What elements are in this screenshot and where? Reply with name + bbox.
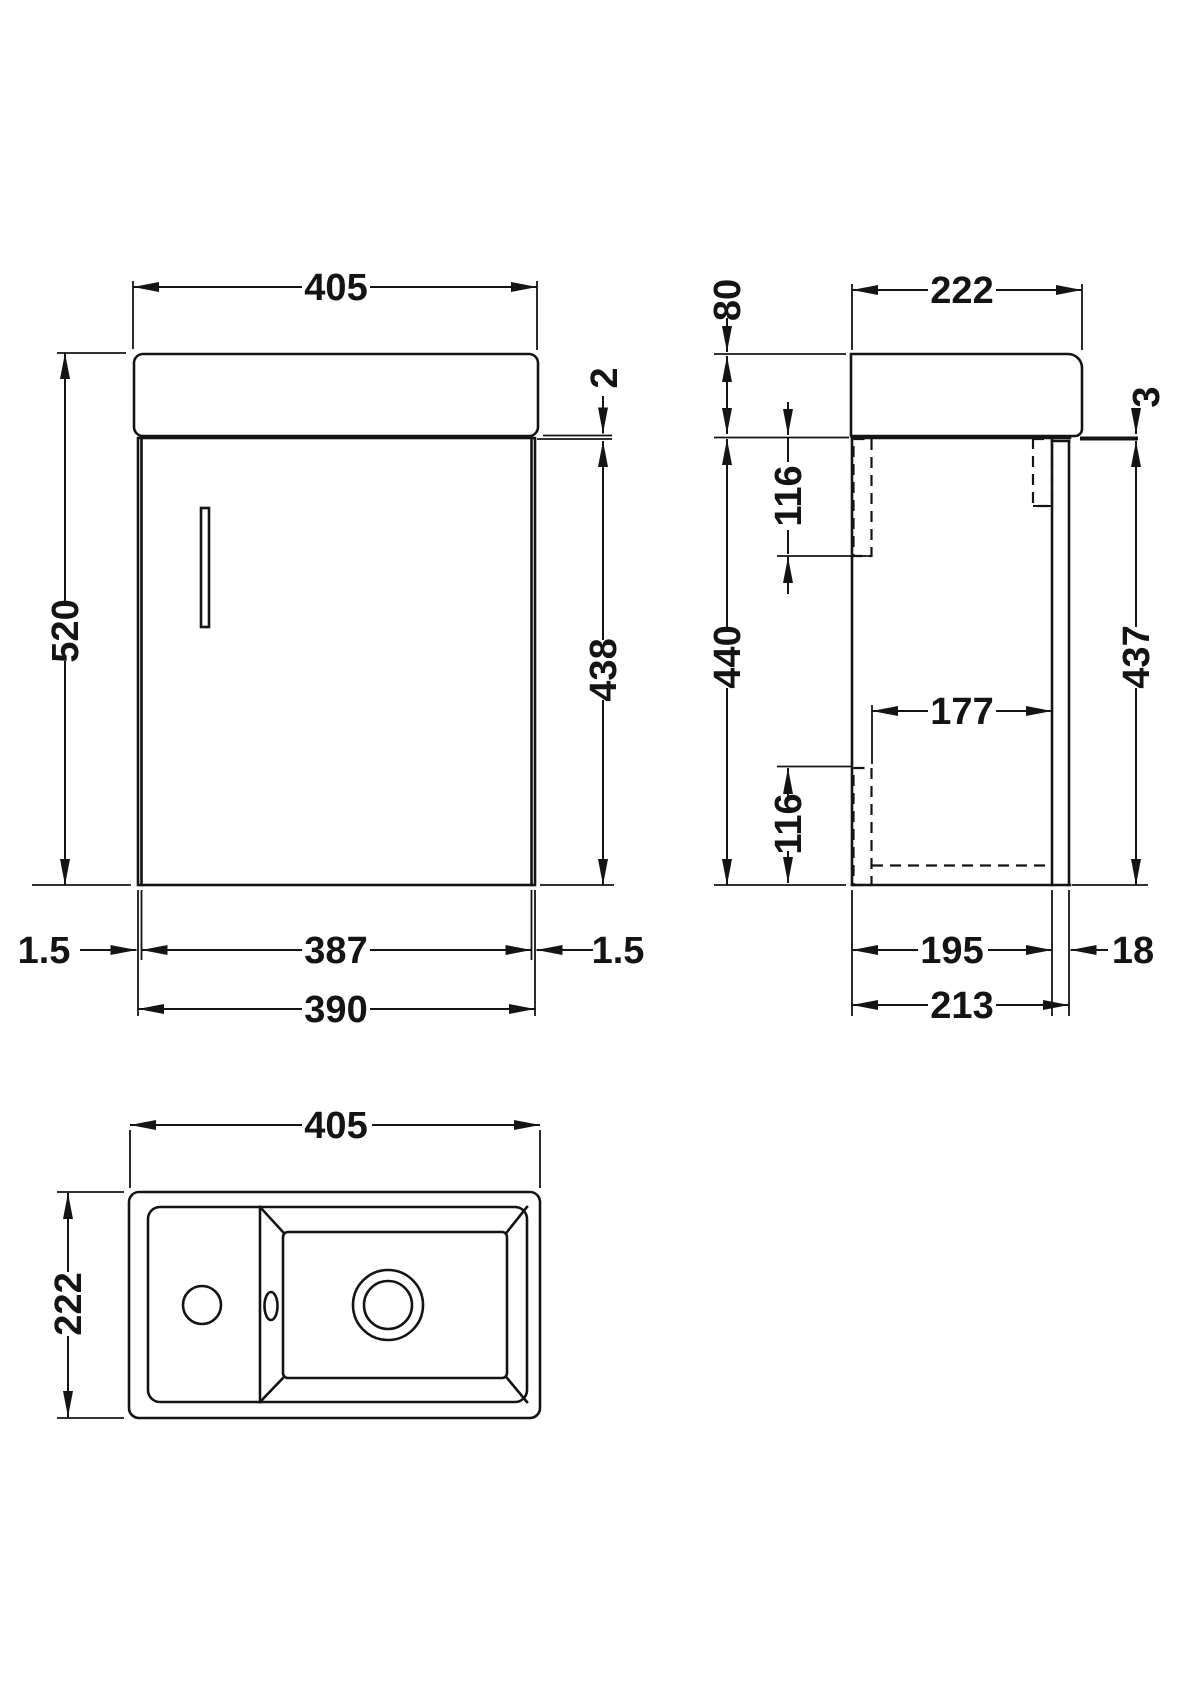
plan-waste-inner — [364, 1281, 412, 1329]
dim-front-overall-width: 405 — [133, 267, 537, 350]
dim-side-internal-depth: 177 — [872, 691, 1052, 764]
side-bottom-bracket-hidden — [854, 768, 872, 885]
dim-side-bottom-bracket: 116 — [768, 767, 853, 884]
side-wall-rail-bar — [1080, 437, 1138, 441]
dim-label-plan-depth: 222 — [48, 1272, 90, 1335]
front-view — [134, 354, 538, 885]
plan-view — [129, 1192, 540, 1418]
plan-overflow-slot — [265, 1292, 278, 1320]
dim-side-basin-height: 80 — [707, 279, 849, 438]
dim-label-plan-width: 405 — [304, 1105, 367, 1147]
plan-basin-outline — [129, 1192, 540, 1418]
dim-label-front-width: 405 — [304, 267, 367, 309]
dim-label-door-height: 437 — [1116, 625, 1158, 688]
dim-side-door-top-gap: 3 — [1126, 386, 1168, 434]
dim-label-overall-cabinet-depth: 213 — [930, 985, 993, 1027]
dim-label-top-bracket: 116 — [768, 465, 810, 526]
dim-label-basin-height: 80 — [707, 279, 749, 321]
dim-label-bottom-bracket: 116 — [768, 793, 810, 854]
dim-label-carcass-depth: 195 — [920, 930, 983, 972]
dim-label-cabinet-width: 390 — [304, 989, 367, 1031]
plan-bowl-bevel-tl — [260, 1207, 283, 1232]
technical-drawing: 405 520 2 438 1.5 387 1.5 390 — [0, 0, 1200, 1698]
dim-label-side-depth: 222 — [930, 270, 993, 312]
dim-label-front-height: 520 — [45, 599, 87, 662]
dim-label-front-cabinet-height: 438 — [583, 638, 625, 701]
dim-side-overall-depth: 222 — [852, 270, 1082, 350]
plan-bowl-inner — [283, 1232, 507, 1378]
dim-label-front-lip: 2 — [584, 367, 626, 388]
front-basin-outline — [134, 354, 538, 436]
dim-label-door-thickness: 18 — [1112, 930, 1154, 972]
dim-plan-overall-width: 405 — [130, 1105, 540, 1188]
side-top-bracket-hidden — [854, 439, 872, 556]
drawing-sheet: 405 520 2 438 1.5 387 1.5 390 — [0, 0, 1200, 1698]
dim-label-internal-depth: 177 — [930, 691, 993, 733]
dim-label-door-gap-right: 1.5 — [592, 930, 645, 972]
dim-plan-overall-depth: 222 — [48, 1192, 124, 1418]
dim-side-door-height: 437 — [1072, 441, 1158, 885]
plan-basin-rim — [148, 1207, 527, 1402]
dim-front-worktop-lip: 2 — [537, 367, 626, 439]
plan-bowl-bevel-tr — [507, 1207, 527, 1232]
plan-bowl-bevel-bl — [260, 1378, 283, 1402]
plan-tap-hole — [183, 1286, 221, 1324]
dim-label-door-top-gap: 3 — [1126, 386, 1168, 407]
front-door-handle — [201, 508, 209, 627]
dim-label-side-cabinet-height: 440 — [707, 625, 749, 688]
front-cabinet-outline — [138, 438, 535, 885]
dim-front-bottom-row: 1.5 387 1.5 390 — [18, 890, 645, 1031]
plan-bowl-bevel-br — [507, 1378, 527, 1402]
dim-side-bottom-row: 195 18 213 — [852, 890, 1154, 1027]
dim-front-overall-height: 520 — [32, 353, 131, 885]
side-basin-profile — [851, 354, 1082, 436]
side-view — [851, 354, 1138, 885]
dim-front-cabinet-height: 438 — [540, 441, 625, 885]
dim-label-door-gap-left: 1.5 — [18, 930, 71, 972]
side-hinge-plate-hidden — [1033, 439, 1052, 506]
dim-label-door-width: 387 — [304, 930, 367, 972]
